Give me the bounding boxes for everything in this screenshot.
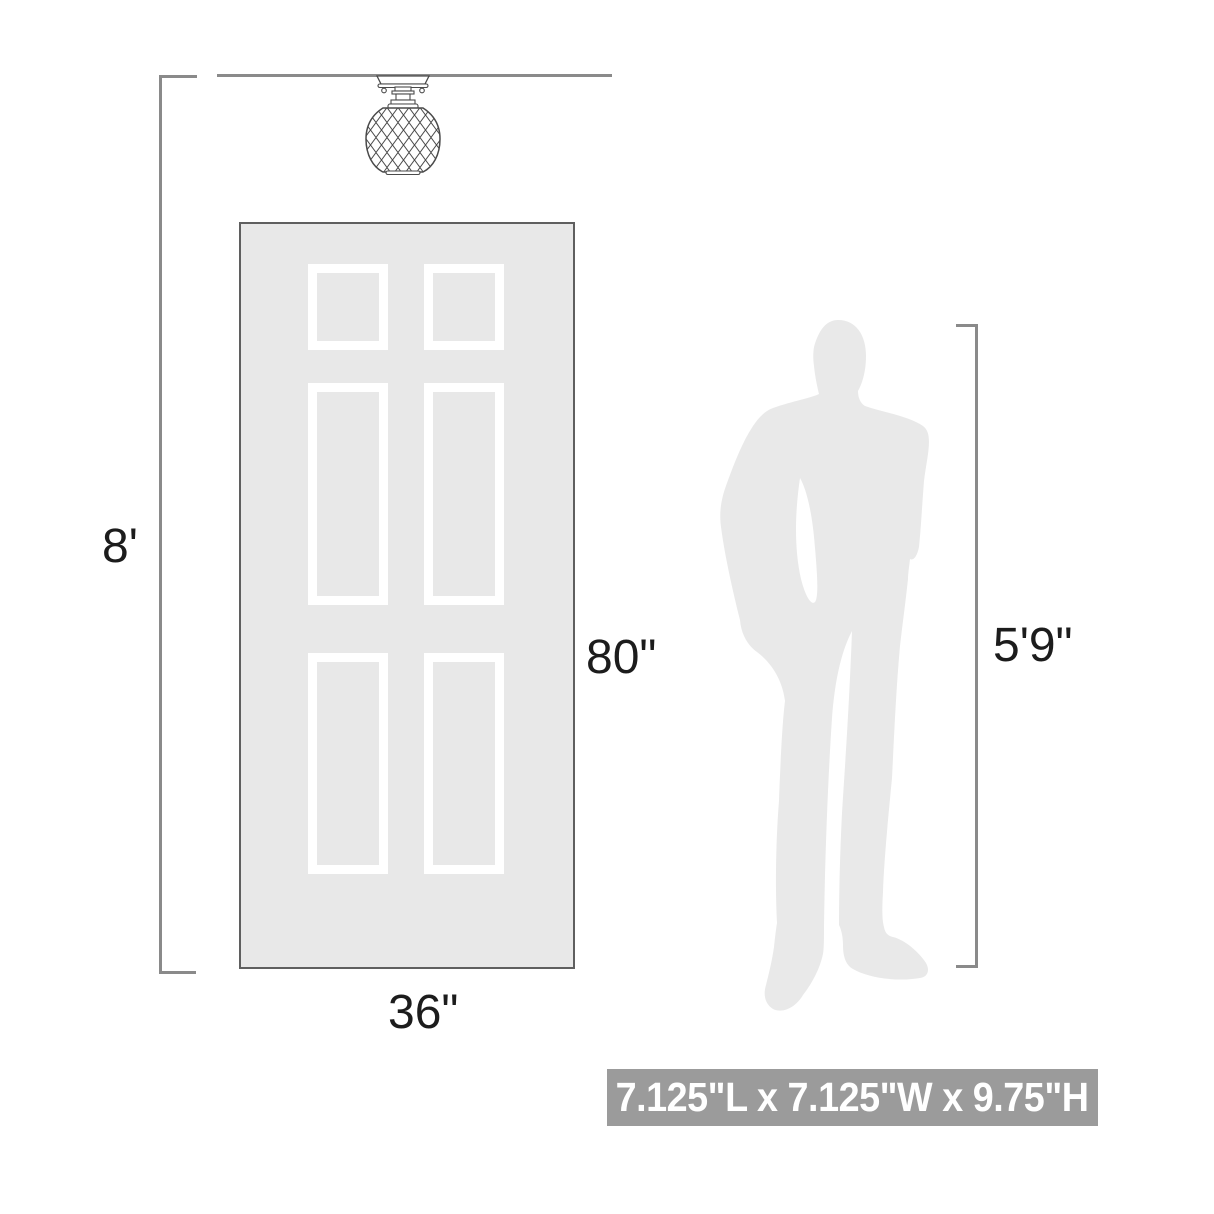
- door-illustration: [239, 222, 575, 969]
- door-panel: [424, 383, 504, 605]
- person-silhouette: [712, 316, 948, 1016]
- door-height-label: 80": [586, 630, 656, 685]
- ceiling-height-bracket-vertical: [159, 75, 162, 974]
- product-dimensions-diagram: 8' 80" 36": [0, 0, 1214, 1214]
- product-dimensions-text: 7.125"L x 7.125"W x 9.75"H: [616, 1074, 1089, 1121]
- door-panel: [308, 264, 388, 350]
- door-panel: [424, 264, 504, 350]
- door-width-label: 36": [388, 985, 458, 1040]
- door-panel: [308, 653, 388, 874]
- product-dimensions-banner: 7.125"L x 7.125"W x 9.75"H: [607, 1069, 1098, 1126]
- ceiling-height-label: 8': [102, 519, 138, 574]
- door-panel: [424, 653, 504, 874]
- ceiling-height-bracket-bottom-tick: [159, 971, 196, 974]
- person-height-label: 5'9": [993, 618, 1073, 673]
- person-height-bracket-vertical: [975, 324, 978, 968]
- door-panel: [308, 383, 388, 605]
- flush-mount-light-icon: [343, 70, 463, 178]
- person-height-bracket-bottom-tick: [956, 965, 978, 968]
- ceiling-height-bracket-top-tick: [159, 75, 197, 78]
